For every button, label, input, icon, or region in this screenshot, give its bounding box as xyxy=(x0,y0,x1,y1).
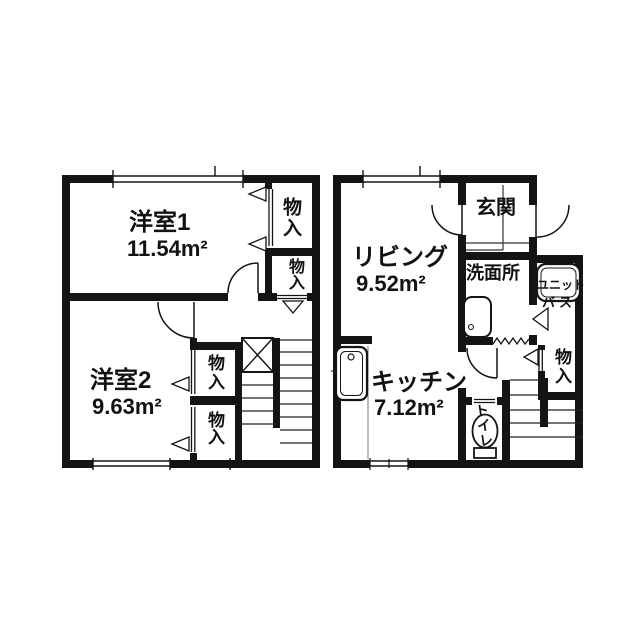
accordion-door xyxy=(493,338,529,344)
floor-plan-drawing xyxy=(0,0,640,640)
room1-name: 洋室1 xyxy=(129,210,190,236)
room2-area: 9.63m² xyxy=(92,395,162,419)
entrance-label: 玄関 xyxy=(476,198,516,220)
room1-area: 11.54m² xyxy=(127,237,208,261)
floor1-plan xyxy=(331,166,583,470)
door-swing-hall xyxy=(467,348,497,378)
window-1f-bottom xyxy=(370,458,408,470)
washbasin-icon xyxy=(464,297,491,337)
unit-bath-label-line1: ユニット xyxy=(537,279,585,292)
floor-plan: 洋室1 11.54m² 洋室2 9.63m² 物入 物入 物入 物入 リビング … xyxy=(0,0,640,640)
closet-label-2f-1: 物入 xyxy=(281,197,300,239)
closet-label-2f-4: 物入 xyxy=(206,411,223,445)
door-swing-room1 xyxy=(228,263,258,293)
closet-door-1f xyxy=(539,350,542,371)
washroom-label: 洗面所 xyxy=(466,264,520,283)
kitchen-area: 7.12m² xyxy=(374,396,444,420)
closet-label-1f: 物入 xyxy=(553,348,570,386)
closet-label-2f-2: 物入 xyxy=(286,258,302,290)
room2-name: 洋室2 xyxy=(90,368,151,394)
door-swing-living xyxy=(432,205,462,235)
kitchen-name: キッチン xyxy=(371,370,467,396)
closet-label-2f-3: 物入 xyxy=(206,354,223,392)
living-name: リビング xyxy=(352,245,448,271)
window-1f-top xyxy=(363,166,440,188)
window-2f-top xyxy=(113,166,243,188)
unit-bath-label-line2: バス xyxy=(542,296,576,310)
door-swing-front-entrance xyxy=(536,205,569,237)
kitchen-sink-icon xyxy=(336,347,367,400)
door-swing-room2 xyxy=(158,302,194,338)
living-area: 9.52m² xyxy=(356,272,426,296)
